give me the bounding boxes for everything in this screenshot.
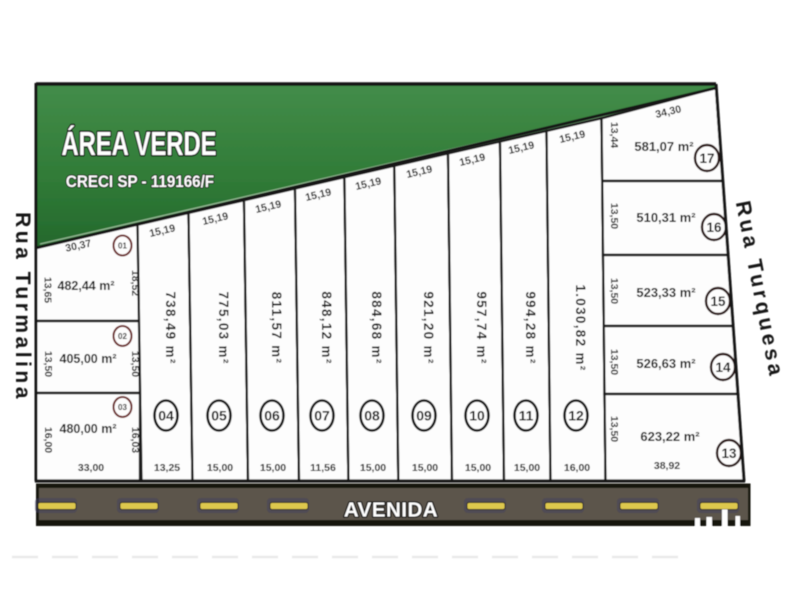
svg-text:526,63 m²: 526,63 m² xyxy=(636,356,696,371)
svg-text:13,50: 13,50 xyxy=(608,203,620,229)
svg-text:16,00: 16,00 xyxy=(42,427,54,453)
svg-text:11: 11 xyxy=(519,408,534,424)
svg-text:13,65: 13,65 xyxy=(42,277,54,303)
svg-text:13,50: 13,50 xyxy=(42,351,54,377)
svg-text:13,25: 13,25 xyxy=(154,462,180,474)
svg-text:405,00 m²: 405,00 m² xyxy=(60,352,117,366)
svg-text:15,00: 15,00 xyxy=(260,462,286,474)
svg-text:523,33 m²: 523,33 m² xyxy=(636,285,696,300)
svg-text:15: 15 xyxy=(710,294,726,309)
svg-text:13: 13 xyxy=(721,446,737,461)
svg-text:13,50: 13,50 xyxy=(608,349,620,375)
svg-text:03: 03 xyxy=(118,403,127,412)
svg-text:581,07 m²: 581,07 m² xyxy=(634,139,694,154)
svg-text:01: 01 xyxy=(118,242,127,251)
svg-text:738,49 m²: 738,49 m² xyxy=(163,291,178,364)
svg-text:11,56: 11,56 xyxy=(310,462,336,474)
svg-text:38,92: 38,92 xyxy=(654,460,680,472)
svg-text:957,74 m²: 957,74 m² xyxy=(474,291,489,364)
svg-text:480,00 m²: 480,00 m² xyxy=(60,422,117,436)
svg-text:CRECI SP - 119166/F: CRECI SP - 119166/F xyxy=(66,173,214,191)
svg-text:811,57 m²: 811,57 m² xyxy=(269,292,284,365)
svg-text:09: 09 xyxy=(416,408,432,424)
svg-text:623,22 m²: 623,22 m² xyxy=(640,429,700,444)
svg-text:17: 17 xyxy=(699,151,714,166)
svg-text:14: 14 xyxy=(715,360,731,375)
svg-text:16,00: 16,00 xyxy=(564,462,590,474)
svg-text:16,03: 16,03 xyxy=(129,427,141,453)
svg-text:510,31 m²: 510,31 m² xyxy=(636,210,696,225)
svg-text:13,44: 13,44 xyxy=(608,122,620,148)
svg-text:05: 05 xyxy=(211,408,227,424)
svg-text:Rua Turmalina: Rua Turmalina xyxy=(11,212,34,402)
svg-text:848,12 m²: 848,12 m² xyxy=(319,291,334,364)
svg-text:1.030,82 m²: 1.030,82 m² xyxy=(573,284,588,371)
svg-text:04: 04 xyxy=(158,408,174,424)
svg-text:07: 07 xyxy=(314,408,330,424)
svg-text:482,44 m²: 482,44 m² xyxy=(58,279,115,293)
svg-text:15,00: 15,00 xyxy=(412,462,438,474)
svg-text:12: 12 xyxy=(568,408,584,424)
svg-text:ÁREA VERDE: ÁREA VERDE xyxy=(61,124,216,163)
svg-text:15,00: 15,00 xyxy=(360,462,386,474)
svg-text:33,00: 33,00 xyxy=(78,462,104,474)
svg-text:13,50: 13,50 xyxy=(608,278,620,304)
svg-text:15,00: 15,00 xyxy=(465,462,491,474)
svg-text:06: 06 xyxy=(264,408,280,424)
svg-text:921,20 m²: 921,20 m² xyxy=(421,291,436,364)
svg-text:15,00: 15,00 xyxy=(207,462,233,474)
svg-text:884,68 m²: 884,68 m² xyxy=(369,291,384,364)
svg-text:994,28 m²: 994,28 m² xyxy=(523,291,538,364)
svg-text:13,50: 13,50 xyxy=(608,416,620,442)
svg-text:10: 10 xyxy=(469,408,485,424)
svg-text:08: 08 xyxy=(364,408,380,424)
svg-text:AVENIDA: AVENIDA xyxy=(344,499,438,522)
svg-text:775,03 m²: 775,03 m² xyxy=(216,291,231,364)
svg-text:16: 16 xyxy=(706,220,722,235)
svg-text:02: 02 xyxy=(118,332,127,341)
svg-text:15,00: 15,00 xyxy=(514,462,540,474)
